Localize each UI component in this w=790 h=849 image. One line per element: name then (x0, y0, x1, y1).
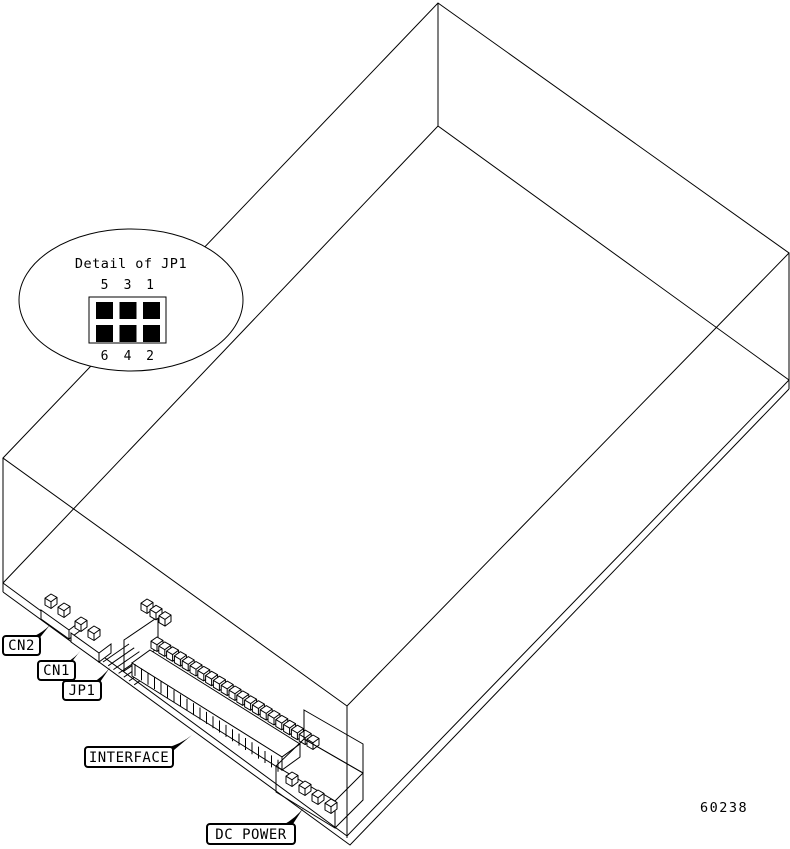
cn2-callout: CN2 (3, 625, 50, 655)
jp1-pin-label-5: 5 (101, 278, 109, 293)
interface-body-top (132, 650, 300, 757)
jp1-pin-label-2: 2 (146, 349, 154, 364)
cn1-callout: CN1 (38, 650, 81, 680)
jp1-pin-label-6: 6 (101, 349, 109, 364)
technical-diagram: Detail of JP1 5 3 1 6 4 2 (0, 0, 790, 849)
dc-power-pin-row (286, 772, 337, 814)
interface-callout-label: INTERFACE (89, 750, 169, 766)
cn2-connector (41, 594, 81, 639)
jp1-callout-label: JP1 (69, 683, 96, 699)
jumper-pads-bottom-row (96, 325, 160, 342)
dc-power-callout: DC POWER (207, 807, 304, 844)
cn1-callout-label: CN1 (43, 663, 70, 679)
cn2-callout-label: CN2 (8, 638, 35, 654)
dc-power-callout-label: DC POWER (215, 827, 287, 843)
drive-wireframe (3, 3, 789, 845)
jp1-top-posts (141, 599, 171, 626)
base-rim-bottom (3, 389, 789, 845)
cn1-connector (71, 617, 111, 662)
jp1-pin-label-4: 4 (124, 349, 132, 364)
detail-bubble: Detail of JP1 5 3 1 6 4 2 (19, 229, 243, 371)
jumper-pads-top-row (96, 302, 160, 319)
jp1-pin-label-1: 1 (146, 278, 154, 293)
figure-number: 60238 (700, 800, 748, 816)
detail-title: Detail of JP1 (75, 256, 187, 272)
connectors (41, 594, 363, 828)
interface-callout: INTERFACE (85, 735, 192, 767)
jp1-pin-label-3: 3 (124, 278, 132, 293)
